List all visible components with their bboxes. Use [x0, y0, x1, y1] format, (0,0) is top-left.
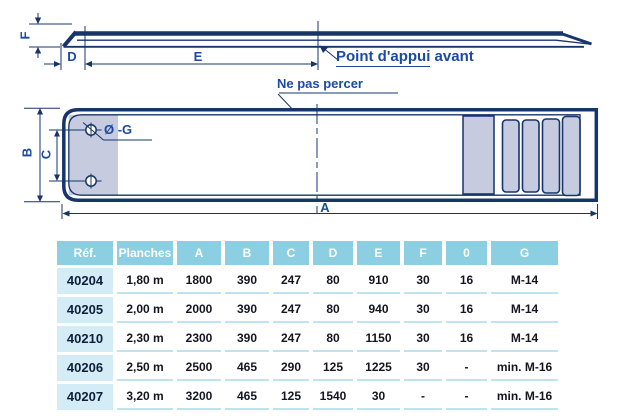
data-cell: 465	[225, 384, 269, 410]
ref-cell: 40207	[57, 384, 113, 410]
dim-label-d: D	[61, 50, 83, 63]
data-cell: -	[404, 384, 442, 410]
dim-label-a: A	[314, 201, 336, 214]
data-cell: 2000	[177, 297, 221, 323]
data-cell: 390	[225, 326, 269, 352]
data-cell: 1,80 m	[117, 268, 173, 294]
data-cell: 16	[446, 326, 487, 352]
dim-label-f: F	[19, 25, 32, 47]
plank-drawing	[0, 0, 620, 235]
dim-label-e: E	[185, 50, 211, 63]
front-support-callout: Point d'appui avant	[336, 48, 474, 65]
data-cell: 247	[273, 297, 309, 323]
technical-drawing-page: F D E Point d'appui avant Ne pas percer …	[0, 0, 620, 420]
data-cell: -	[446, 355, 487, 381]
ref-cell: 40205	[57, 297, 113, 323]
no-drill-note: Ne pas percer	[277, 76, 363, 91]
ref-cell: 40204	[57, 268, 113, 294]
column-header-planches: Planches	[117, 241, 173, 265]
data-cell: 3,20 m	[117, 384, 173, 410]
data-cell: 2,50 m	[117, 355, 173, 381]
data-cell: 2,30 m	[117, 326, 173, 352]
data-cell: 30	[404, 297, 442, 323]
column-header-f: F	[404, 241, 442, 265]
dim-label-b: B	[21, 142, 34, 164]
data-cell: 1800	[177, 268, 221, 294]
data-cell: 80	[313, 326, 353, 352]
data-cell: 465	[225, 355, 269, 381]
data-cell: 940	[357, 297, 400, 323]
column-header-c: C	[273, 241, 309, 265]
data-cell: 16	[446, 268, 487, 294]
data-cell: 390	[225, 268, 269, 294]
data-cell: min. M-16	[491, 355, 558, 381]
column-header-e: E	[357, 241, 400, 265]
column-header-0: 0	[446, 241, 487, 265]
callout-underlined-text: Point d'appui	[336, 48, 430, 67]
data-cell: 30	[404, 326, 442, 352]
hole-diameter-label: Ø -G	[104, 122, 132, 137]
data-cell: 247	[273, 268, 309, 294]
data-cell: -	[446, 384, 487, 410]
callout-rest-text: avant	[430, 48, 473, 65]
data-cell: 1225	[357, 355, 400, 381]
data-cell: 3200	[177, 384, 221, 410]
data-cell: 2,00 m	[117, 297, 173, 323]
dim-label-c: C	[40, 144, 53, 166]
ref-cell: 40206	[57, 355, 113, 381]
data-cell: 910	[357, 268, 400, 294]
side-view-profile	[64, 32, 592, 47]
data-cell: 290	[273, 355, 309, 381]
column-header-b: B	[225, 241, 269, 265]
column-header-ref: Réf.	[57, 241, 113, 265]
data-cell: 125	[273, 384, 309, 410]
column-header-g: G	[491, 241, 558, 265]
data-cell: M-14	[491, 326, 558, 352]
data-cell: 2300	[177, 326, 221, 352]
ref-cell: 40210	[57, 326, 113, 352]
data-cell: min. M-16	[491, 384, 558, 410]
data-cell: M-14	[491, 297, 558, 323]
data-cell: 2500	[177, 355, 221, 381]
data-cell: 30	[357, 384, 400, 410]
column-header-a: A	[177, 241, 221, 265]
data-cell: 390	[225, 297, 269, 323]
data-cell: 80	[313, 268, 353, 294]
data-cell: 80	[313, 297, 353, 323]
data-cell: 30	[404, 268, 442, 294]
data-cell: 247	[273, 326, 309, 352]
data-cell: 1540	[313, 384, 353, 410]
data-cell: 1150	[357, 326, 400, 352]
data-cell: M-14	[491, 268, 558, 294]
data-cell: 16	[446, 297, 487, 323]
spec-table: Réf.PlanchesABCDEF0G402041,80 m180039024…	[57, 241, 558, 410]
data-cell: 30	[404, 355, 442, 381]
column-header-d: D	[313, 241, 353, 265]
data-cell: 125	[313, 355, 353, 381]
